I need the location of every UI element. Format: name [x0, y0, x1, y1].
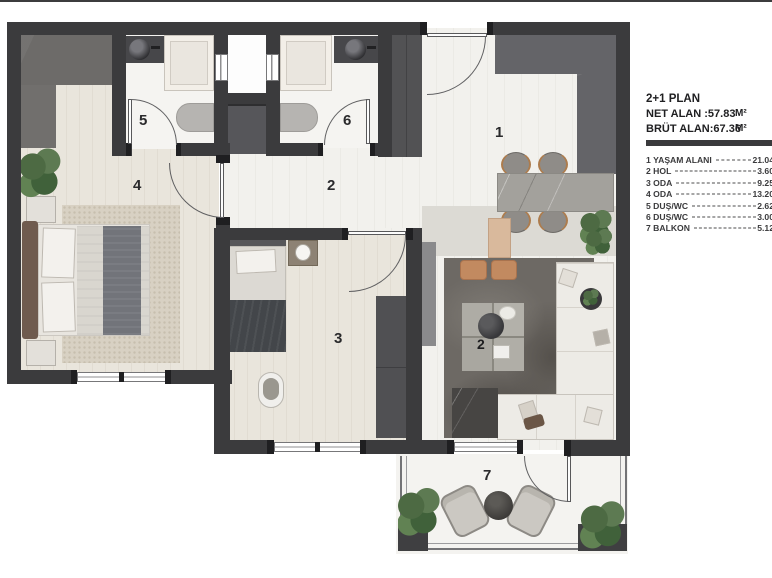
- legend-row-leader: [694, 228, 756, 229]
- dining-table: [497, 173, 614, 212]
- legend-row-num: 2: [646, 166, 651, 176]
- kitchen-counter-right: [577, 74, 616, 174]
- legend-row-area: 9.25: [757, 178, 772, 188]
- floor-plan-page: 1 2 3 4 5 6 2 7 2+1 PLAN NET ALAN :57.83…: [0, 0, 772, 578]
- legend-row-area: 13.20: [752, 189, 772, 199]
- single-bed-blanket: [228, 300, 286, 352]
- bed-pillow-1: [41, 227, 76, 278]
- legend-row-leader: [676, 182, 756, 183]
- kitchen-bench: [488, 218, 511, 258]
- balcony-plant-right: [580, 500, 628, 550]
- coffee-table-plate: [499, 306, 516, 320]
- legend-row-area: 21.04: [752, 155, 772, 165]
- wall-room3-left: [214, 228, 230, 454]
- sofa-pillow-2: [593, 329, 611, 347]
- room4-nightstand-top: [26, 196, 56, 223]
- legend-net-unit: M²: [735, 107, 747, 122]
- wall-shaft-right: [266, 22, 280, 156]
- wall-shaft-bottom: [214, 93, 280, 104]
- wall-top-right: [487, 22, 630, 35]
- room3-chair-seat: [263, 378, 279, 400]
- bath6-sink-basin: [345, 39, 366, 60]
- wall-room3-right: [406, 228, 422, 440]
- bath6-faucet: [367, 46, 376, 49]
- room4-window-post-left: [71, 370, 77, 384]
- legend-row-num: 6: [646, 212, 651, 222]
- legend-row: 6 DUŞ/WC 3.00: [646, 212, 772, 223]
- legend-row-num: 4: [646, 189, 651, 199]
- room-label-hall: 2: [327, 177, 335, 194]
- page-top-border: [0, 0, 772, 2]
- bath6-door-post-right: [370, 143, 375, 156]
- room4-door-post-top: [216, 155, 230, 163]
- legend-row: 3 ODA 9.25: [646, 178, 772, 189]
- legend-row-leader: [675, 171, 756, 172]
- living-corner-plant: [585, 229, 615, 255]
- pouf-2: [491, 260, 517, 280]
- legend-row-num: 1: [646, 155, 651, 165]
- living-window-post-right: [517, 440, 523, 454]
- living-window: [454, 442, 518, 452]
- media-console: [452, 388, 498, 438]
- coffee-table-book: [493, 345, 510, 359]
- legend-row-area: 3.00: [757, 212, 772, 222]
- wall-right: [616, 22, 630, 456]
- balcony-table: [484, 491, 513, 520]
- legend-row-leader: [676, 194, 751, 195]
- wall-bath6-bottom-a: [266, 143, 323, 156]
- entry-closet: [392, 35, 422, 157]
- legend-row-name: ODA: [653, 178, 672, 188]
- wall-bath5-bottom-b: [176, 143, 216, 156]
- legend-divider: [646, 140, 772, 146]
- kitchen-counter-top: [495, 35, 616, 74]
- tv-panel: [422, 242, 436, 346]
- room3-window-post-right: [360, 440, 366, 454]
- legend-row-name: BALKON: [653, 223, 690, 233]
- shaft-vent-left: [215, 54, 228, 81]
- wall-room4-bottom-a: [7, 370, 77, 384]
- legend-row-num: 7: [646, 223, 651, 233]
- legend-row-name: DUŞ/WC: [653, 212, 688, 222]
- room4-plant: [20, 146, 62, 200]
- coffee-table-number: 2: [477, 336, 485, 352]
- bath6-door-post-left: [318, 143, 323, 156]
- legend-row: 7 BALKON 5.12: [646, 223, 772, 234]
- room-label-balcony: 7: [483, 467, 491, 484]
- room-label-living: 1: [495, 124, 503, 141]
- bath6-shower: [280, 35, 332, 91]
- shaft-duct: [228, 104, 266, 154]
- room3-lamp: [295, 244, 311, 261]
- legend-row-name: ODA: [653, 189, 672, 199]
- legend-room-list: 1 YAŞAM ALANI 21.04 2 HOL 3.60 3 ODA 9.2…: [646, 155, 772, 235]
- legend-row: 2 HOL 3.60: [646, 166, 772, 177]
- legend-row-area: 5.12: [757, 223, 772, 233]
- bath5-tub: [176, 103, 214, 132]
- room3-window-post-mid: [315, 442, 320, 452]
- legend-row-name: DUŞ/WC: [653, 201, 688, 211]
- wall-left: [7, 22, 21, 384]
- wall-room3-top: [230, 228, 348, 240]
- side-table-plant: [583, 289, 600, 306]
- legend-panel: 2+1 PLAN NET ALAN :57.83 M² BRÜT ALAN:67…: [646, 92, 772, 235]
- shaft-vent-right: [266, 54, 279, 81]
- legend-row-leader: [692, 216, 756, 217]
- bed-throw: [103, 226, 141, 335]
- legend-row-num: 5: [646, 201, 651, 211]
- balcony-plant-left: [398, 486, 442, 538]
- legend-row-area: 2.62: [757, 201, 772, 211]
- legend-row-num: 3: [646, 178, 651, 188]
- balcony-door-post-right: [564, 440, 571, 456]
- legend-row-area: 3.60: [757, 166, 772, 176]
- living-window-post-left: [447, 440, 454, 454]
- room-label-bath5: 5: [139, 112, 147, 129]
- single-bed-pillow: [235, 249, 276, 274]
- legend-brut-area: BRÜT ALAN:67.36 M²: [646, 122, 772, 137]
- room3-wardrobe: [376, 296, 406, 438]
- legend-row: 5 DUŞ/WC 2.62: [646, 201, 772, 212]
- legend-brut-text: BRÜT ALAN:67.36: [646, 123, 741, 135]
- wall-bath6-right: [378, 22, 392, 157]
- bed-headboard: [22, 221, 38, 339]
- room-label-room4: 4: [133, 177, 141, 194]
- room4-wardrobe-top: [21, 35, 112, 85]
- room4-window-post-right: [165, 370, 171, 384]
- legend-row: 4 ODA 13.20: [646, 189, 772, 200]
- bath5-shower: [164, 35, 214, 91]
- bath5-sink-basin: [129, 39, 150, 60]
- room4-wardrobe-left: [21, 85, 56, 148]
- wall-bottom-b: [364, 440, 454, 454]
- room3-door-post-right: [406, 228, 413, 240]
- room4-nightstand-bottom: [26, 340, 56, 366]
- legend-brut-unit: M²: [735, 122, 747, 137]
- room-label-bath6: 6: [343, 112, 351, 129]
- legend-row-leader: [716, 160, 752, 161]
- room4-door-post-bottom: [216, 217, 230, 225]
- bath6-tub: [280, 103, 318, 132]
- entry-door-post-right: [487, 22, 493, 35]
- legend-row-leader: [692, 205, 756, 206]
- legend-row: 1 YAŞAM ALANI 21.04: [646, 155, 772, 166]
- room4-window-post-mid: [119, 372, 124, 382]
- entry-door-post-left: [420, 22, 427, 35]
- wall-shaft-left: [214, 22, 228, 156]
- bath5-faucet: [151, 46, 160, 49]
- wall-bottom-a: [214, 440, 274, 454]
- legend-net-text: NET ALAN :57.83: [646, 108, 735, 120]
- legend-row-name: YAŞAM ALANI: [653, 155, 712, 165]
- room3-window-post-left: [267, 440, 274, 454]
- pouf-1: [460, 260, 487, 280]
- legend-title: 2+1 PLAN: [646, 92, 772, 107]
- legend-row-name: HOL: [653, 166, 671, 176]
- room-label-room3: 3: [334, 330, 342, 347]
- wall-bath5-left: [112, 22, 126, 156]
- bed-pillow-2: [41, 281, 76, 332]
- legend-net-area: NET ALAN :57.83 M²: [646, 107, 772, 122]
